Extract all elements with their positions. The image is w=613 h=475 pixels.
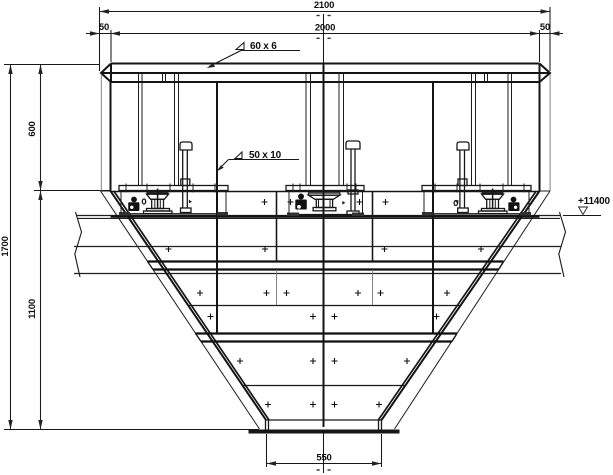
svg-text:600: 600 bbox=[27, 121, 38, 136]
svg-text:2000: 2000 bbox=[315, 23, 335, 34]
svg-text:50: 50 bbox=[99, 22, 109, 33]
svg-text:550: 550 bbox=[316, 453, 331, 464]
svg-text:50: 50 bbox=[540, 22, 550, 33]
svg-text:1700: 1700 bbox=[0, 236, 11, 256]
svg-text:+11400: +11400 bbox=[578, 196, 611, 207]
svg-text:2100: 2100 bbox=[314, 0, 334, 11]
svg-text:1100: 1100 bbox=[27, 299, 38, 319]
